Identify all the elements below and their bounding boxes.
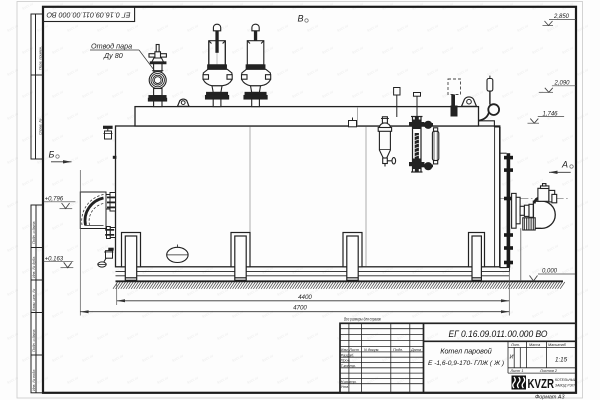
svg-text:Масштаб: Масштаб — [548, 343, 567, 347]
svg-text:Инв. № дубл.: Инв. № дубл. — [32, 256, 36, 278]
svg-text:Масса: Масса — [529, 343, 540, 347]
svg-text:КОТЕЛЬНЫЙ: КОТЕЛЬНЫЙ — [555, 378, 577, 382]
svg-text:Дата: Дата — [410, 348, 421, 352]
svg-text:Н.контр.: Н.контр. — [341, 380, 357, 384]
svg-text:Все размеры для справок: Все размеры для справок — [344, 316, 382, 321]
svg-text:Разраб.: Разраб. — [341, 353, 355, 357]
svg-text:1,746: 1,746 — [543, 112, 559, 118]
svg-text:И: И — [510, 355, 514, 361]
svg-text:Пров.: Пров. — [341, 359, 351, 363]
svg-text:Перв. примен.: Перв. примен. — [39, 46, 43, 70]
svg-text:Подп. и дата: Подп. и дата — [32, 330, 36, 353]
svg-text:А: А — [561, 160, 568, 170]
svg-text:Инв. № подл.: Инв. № подл. — [32, 369, 36, 391]
svg-text:N докум.: N докум. — [364, 348, 379, 352]
svg-text:В: В — [298, 14, 304, 24]
svg-text:Б: Б — [49, 150, 55, 160]
svg-text:ЕГ 0.16.09.011.00.000 ВО: ЕГ 0.16.09.011.00.000 ВО — [46, 10, 131, 17]
svg-text:4700: 4700 — [293, 305, 307, 312]
svg-text:Подп.: Подп. — [393, 348, 403, 352]
svg-text:Котел паровой: Котел паровой — [440, 346, 492, 355]
svg-text:Лист 1: Лист 1 — [510, 369, 524, 373]
svg-text:1:15: 1:15 — [555, 357, 568, 364]
svg-text:ЕГ 0.16.09.011.00.000 ВО: ЕГ 0.16.09.011.00.000 ВО — [449, 329, 548, 340]
svg-text:ЗАВОД РЭП: ЗАВОД РЭП — [555, 384, 575, 388]
svg-text:Утв.: Утв. — [341, 385, 350, 389]
svg-text:Справ. №: Справ. № — [39, 119, 43, 135]
svg-text:Лит.: Лит. — [510, 343, 520, 347]
svg-text:Взам. инв. №: Взам. инв. № — [32, 289, 36, 311]
svg-text:Лист: Лист — [348, 348, 359, 352]
svg-text:Подп. и дата: Подп. и дата — [32, 222, 36, 245]
svg-text:Изм: Изм — [341, 348, 348, 352]
svg-text:Е -1,6-0,9-170- ГЛЖ ( Ж ): Е -1,6-0,9-170- ГЛЖ ( Ж ) — [428, 360, 504, 367]
svg-text:Формат А3: Формат А3 — [535, 395, 565, 400]
svg-text:Т.контр.: Т.контр. — [341, 364, 356, 368]
svg-text:Ду 80: Ду 80 — [103, 51, 123, 60]
svg-text:Листов 2: Листов 2 — [539, 369, 558, 373]
svg-text:Отвод пара: Отвод пара — [91, 42, 132, 51]
svg-text:4400: 4400 — [298, 294, 312, 301]
svg-text:KVZR: KVZR — [528, 377, 555, 391]
